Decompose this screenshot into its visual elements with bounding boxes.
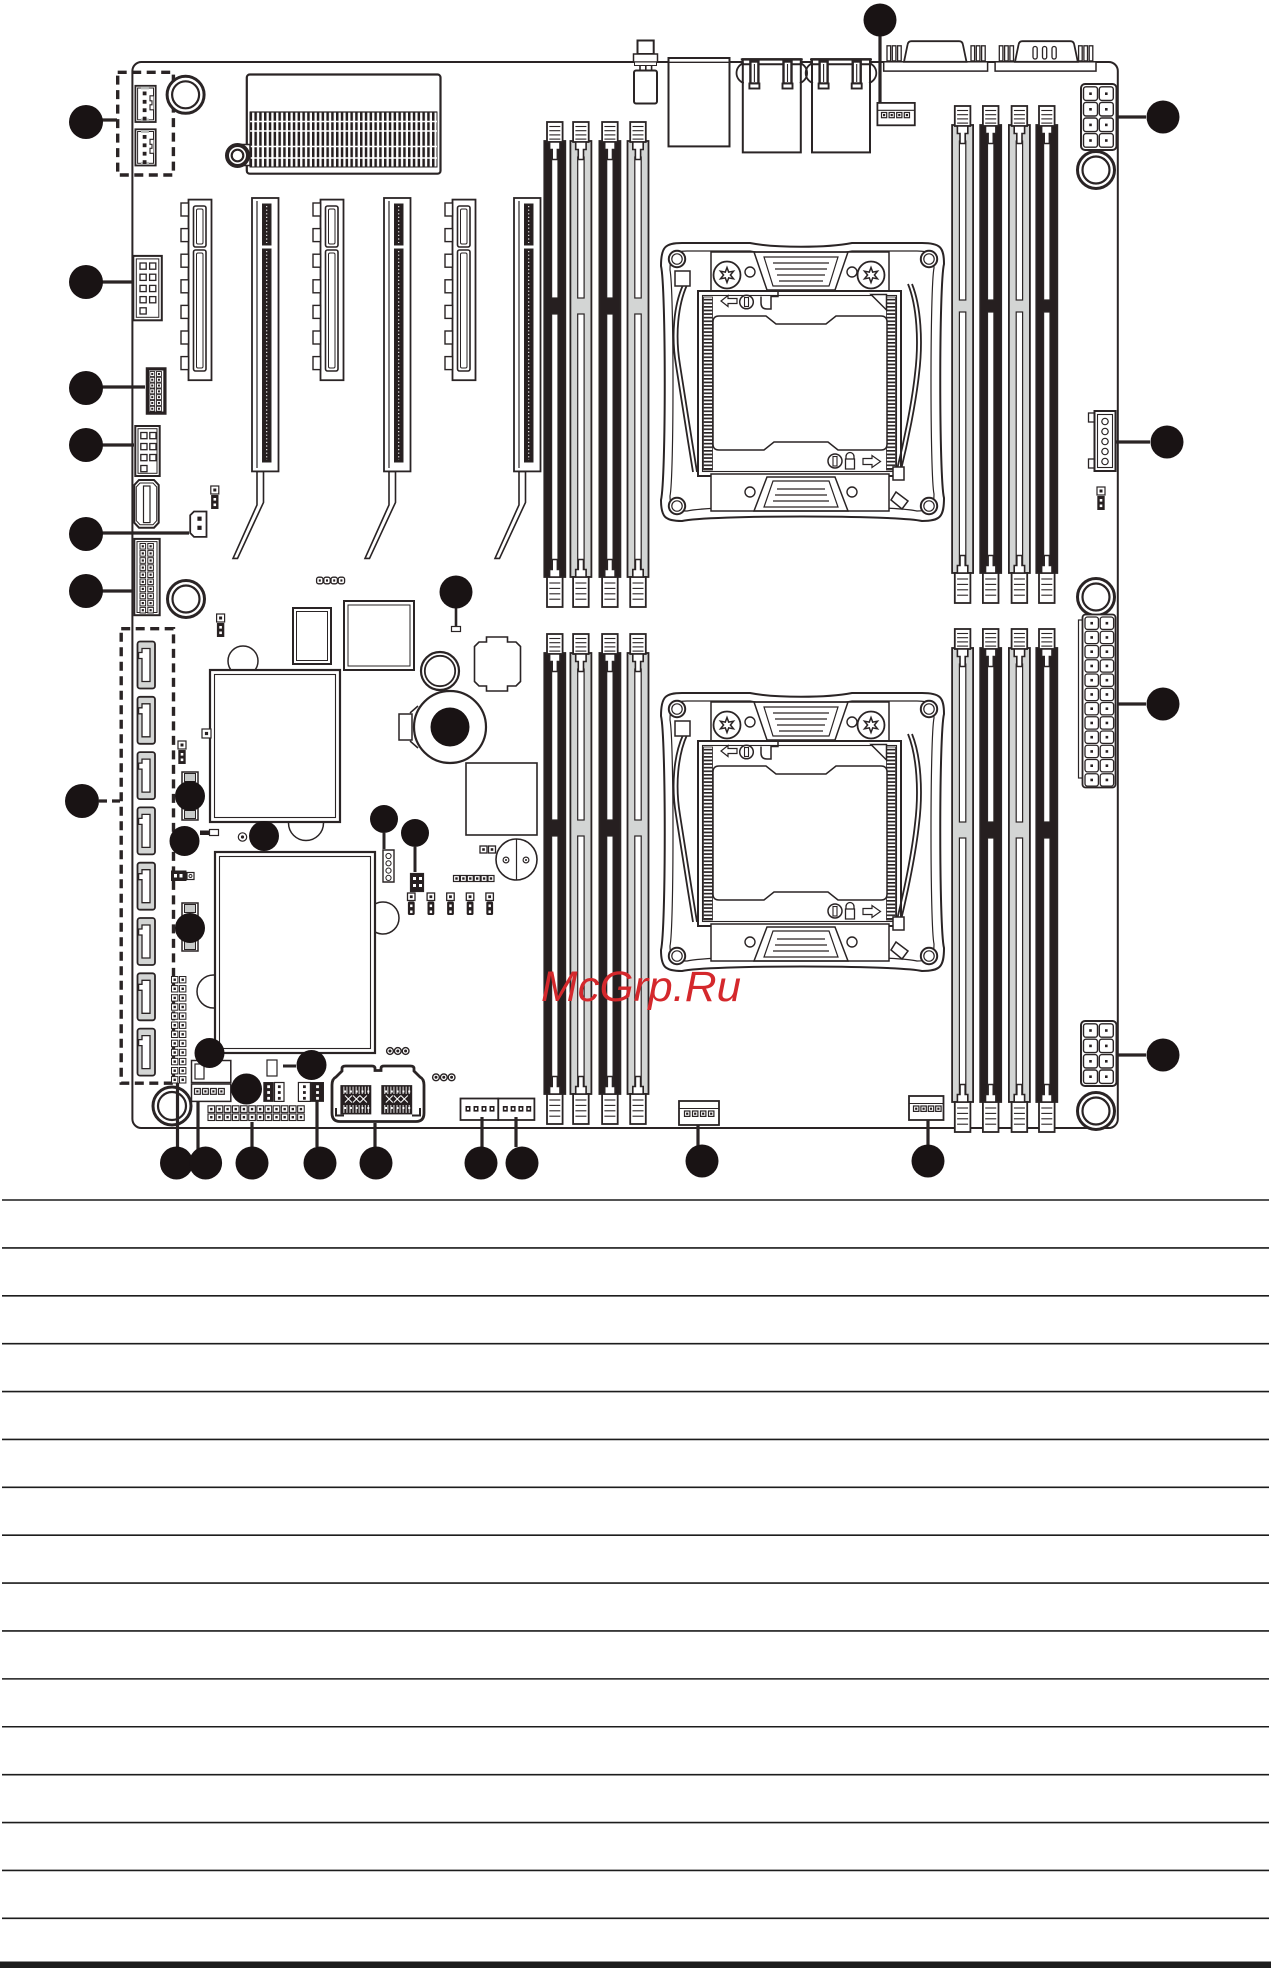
svg-text:McGrp.Ru: McGrp.Ru [541, 964, 741, 1011]
